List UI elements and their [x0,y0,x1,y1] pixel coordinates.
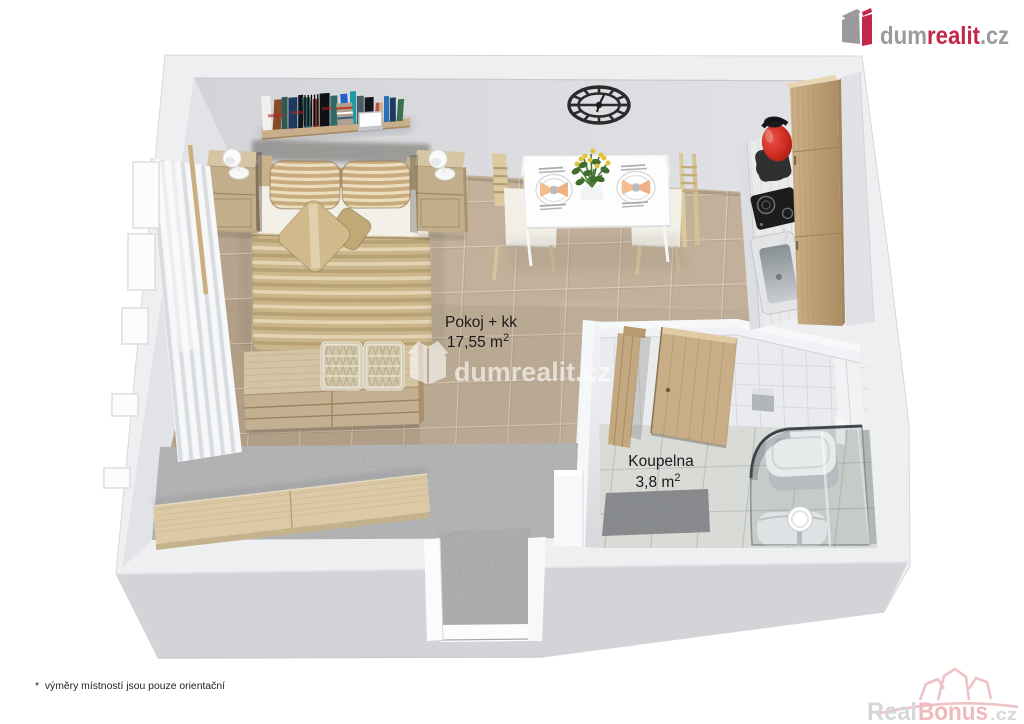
svg-text:.cz: .cz [990,705,1017,724]
svg-text:dum: dum [880,22,927,50]
svg-text:Bonus: Bonus [918,698,988,724]
svg-text:Real: Real [867,698,917,724]
svg-text:* výměry místností jsou pouze: * výměry místností jsou pouze orientační [35,681,225,692]
svg-text:Koupelna: Koupelna [628,453,694,470]
svg-text:17,55 m2: 17,55 m2 [447,332,509,351]
svg-text:Pokoj + kk: Pokoj + kk [445,314,517,331]
svg-text:dumrealit.cz: dumrealit.cz [454,357,611,387]
svg-text:3,8 m2: 3,8 m2 [636,472,681,491]
svg-text:realit: realit [927,22,981,50]
svg-text:.cz: .cz [980,22,1009,50]
